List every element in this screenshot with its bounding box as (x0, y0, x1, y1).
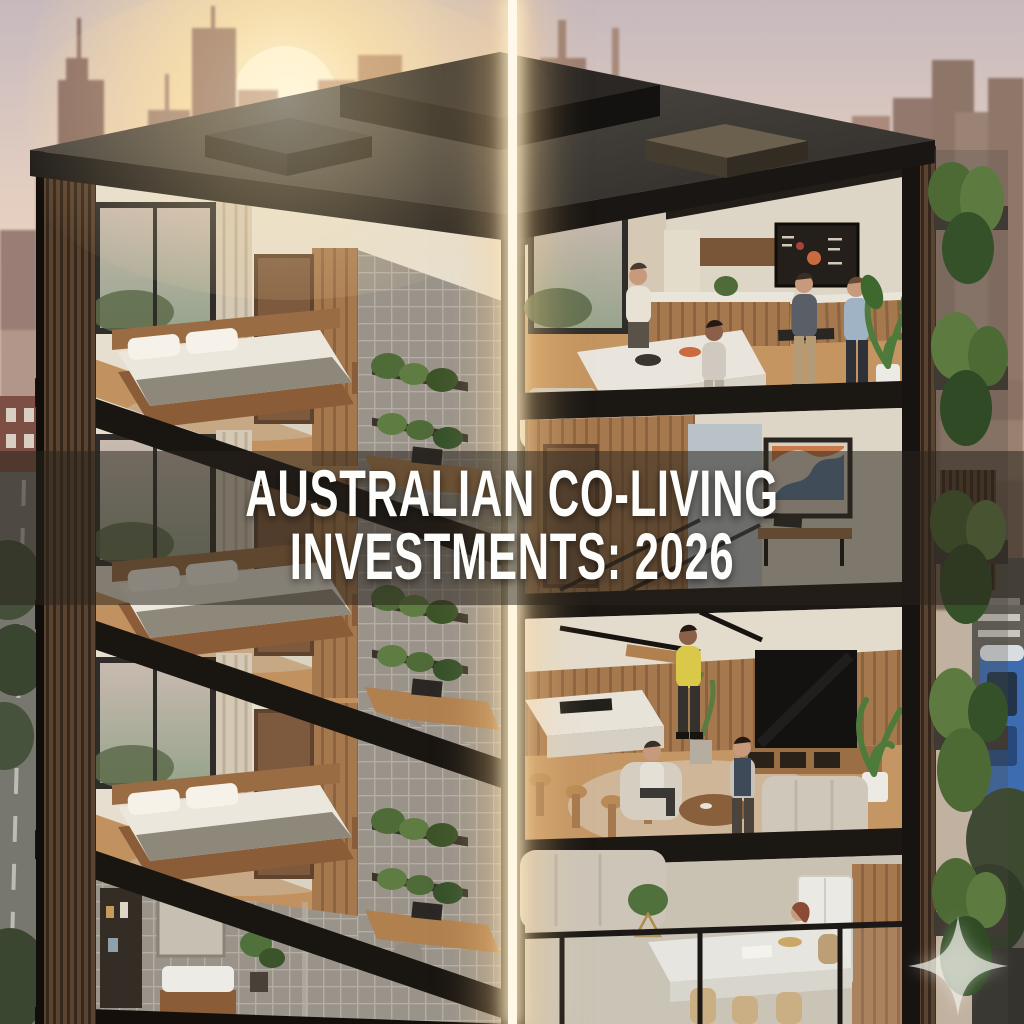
poster-title: AUSTRALIAN CO-LIVING INVESTMENTS: 2026 (0, 462, 1024, 588)
communal-living-room (518, 606, 935, 867)
sparkle-icon (898, 906, 1018, 1024)
communal-dining-nook (520, 850, 930, 1024)
poster-title-line1: AUSTRALIAN CO-LIVING (174, 462, 850, 525)
coliving-poster: AUSTRALIAN CO-LIVING INVESTMENTS: 2026 (0, 0, 1024, 1024)
poster-title-line2: INVESTMENTS: 2026 (174, 525, 850, 588)
